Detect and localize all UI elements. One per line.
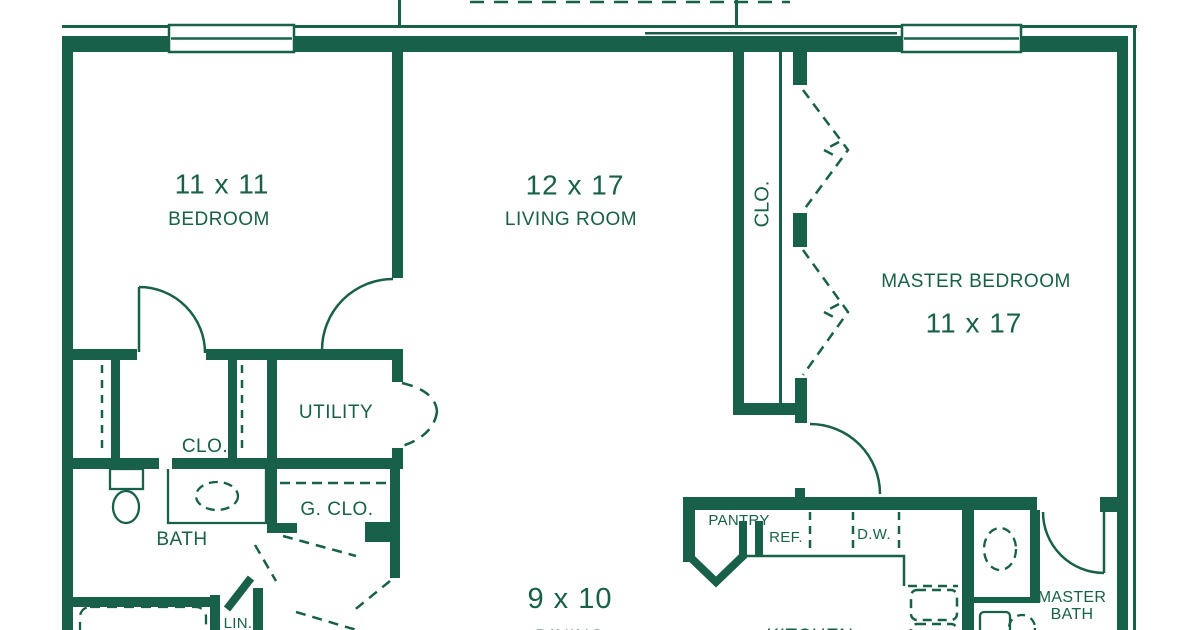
utility-fold-door (402, 383, 437, 412)
utility-label: UTILITY (299, 403, 373, 423)
bath-label: BATH (156, 530, 207, 550)
bedroom-dims-label: 11 x 11 (175, 169, 270, 198)
master-toilet (984, 528, 1016, 570)
master-bedroom-label: MASTER BEDROOM (881, 272, 1071, 292)
guest-closet-fold-door (283, 536, 356, 556)
entry-recess (645, 28, 897, 35)
bedroom-label: BEDROOM (168, 210, 270, 230)
master-bath-label: MASTER BATH (1017, 590, 1127, 624)
kitchen-fixtures (689, 512, 958, 630)
living-room-dims-label: 12 x 17 (526, 170, 625, 199)
lower-closet-fold-door (296, 612, 360, 630)
floorplan-page: 11 x 11 BEDROOM 12 x 17 LIVING ROOM MAST… (0, 0, 1200, 630)
dishwasher-label: D.W. (857, 527, 891, 543)
living-room-door-arc (322, 279, 393, 350)
bedroom-closet-label: CLO. (182, 437, 228, 457)
bathtub (80, 607, 206, 630)
master-bedroom-dims-label: 11 x 17 (926, 308, 1023, 337)
dining-dims-label: 9 x 10 (528, 584, 613, 614)
master-closet-bifold-doors (803, 90, 848, 375)
master-bedroom-door-arc (810, 424, 880, 494)
guest-closet-label: G. CLO. (300, 500, 373, 520)
range-appliance (911, 590, 957, 630)
vanity-sink (168, 469, 266, 523)
bedroom-door (139, 287, 205, 353)
toilet (110, 469, 143, 523)
pantry-label: PANTRY (708, 513, 769, 529)
living-room-label: LIVING ROOM (505, 210, 637, 230)
hall-door-leaf (227, 578, 251, 609)
linen-closet-label: LIN. (224, 616, 253, 630)
refrigerator-label: REF. (769, 530, 803, 546)
master-bath-door (1043, 512, 1104, 573)
master-closet-label: CLO. (753, 181, 774, 228)
